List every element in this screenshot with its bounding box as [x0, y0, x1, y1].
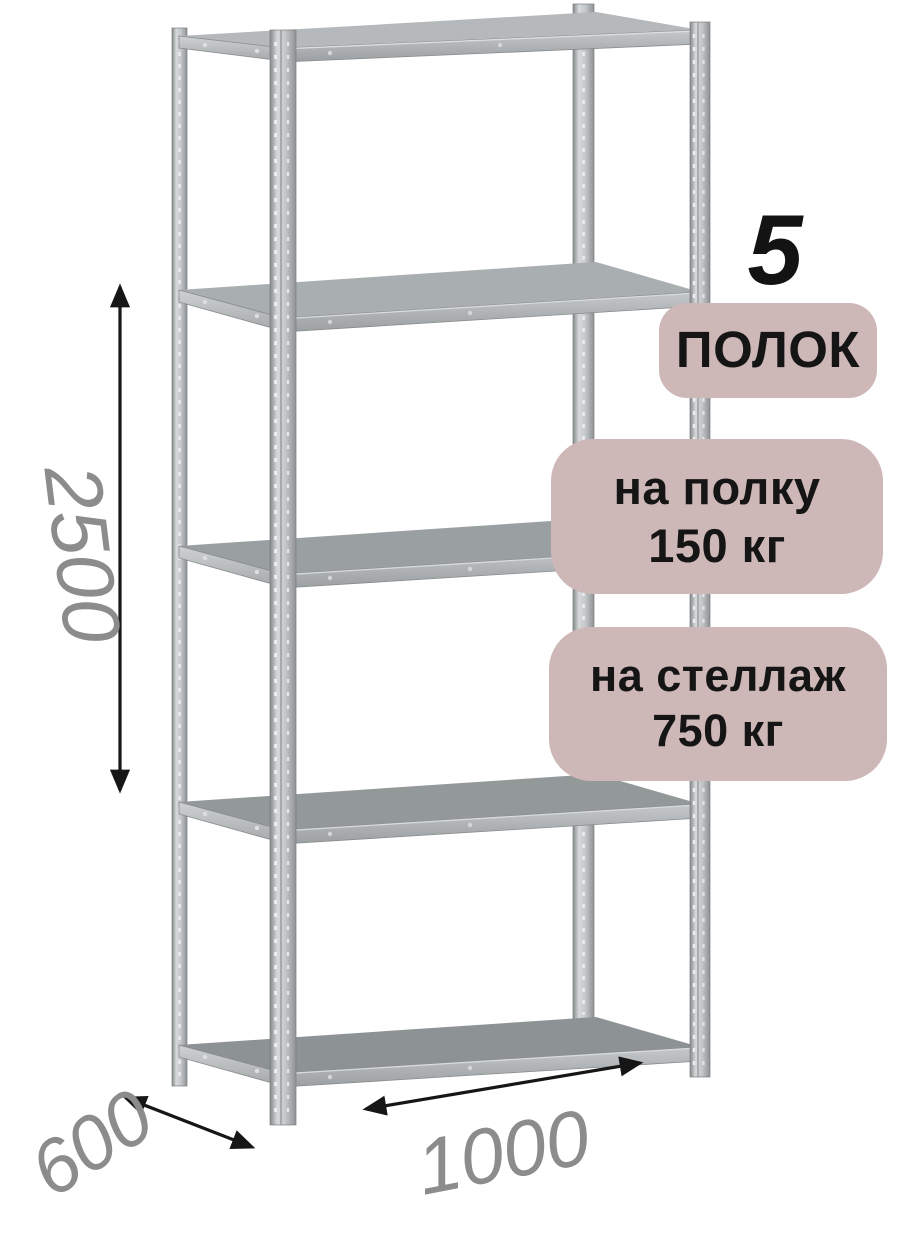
- shelf-4: [179, 774, 700, 844]
- per-rack-load-badge: на стеллаж 750 кг: [549, 627, 887, 781]
- shelf-1: [179, 12, 700, 62]
- shelf-count-number: 5: [708, 200, 842, 310]
- per-shelf-load-line1: на полку: [613, 459, 820, 516]
- per-rack-load-line2: 750 кг: [652, 704, 784, 759]
- shelf-count-badge: ПОЛОК: [659, 303, 877, 398]
- post-front-left: [270, 30, 296, 1125]
- shelf-2: [179, 262, 700, 332]
- per-shelf-load-line2: 150 кг: [648, 517, 786, 574]
- shelf-count-label: ПОЛОК: [676, 319, 860, 381]
- rack-illustration: [0, 0, 900, 1200]
- per-rack-load-line1: на стеллаж: [590, 649, 846, 704]
- product-image: 2500 600 1000 5 ПОЛОК на полку 150 кг на…: [0, 0, 900, 1200]
- shelf-5: [179, 1017, 700, 1087]
- per-shelf-load-badge: на полку 150 кг: [551, 439, 883, 594]
